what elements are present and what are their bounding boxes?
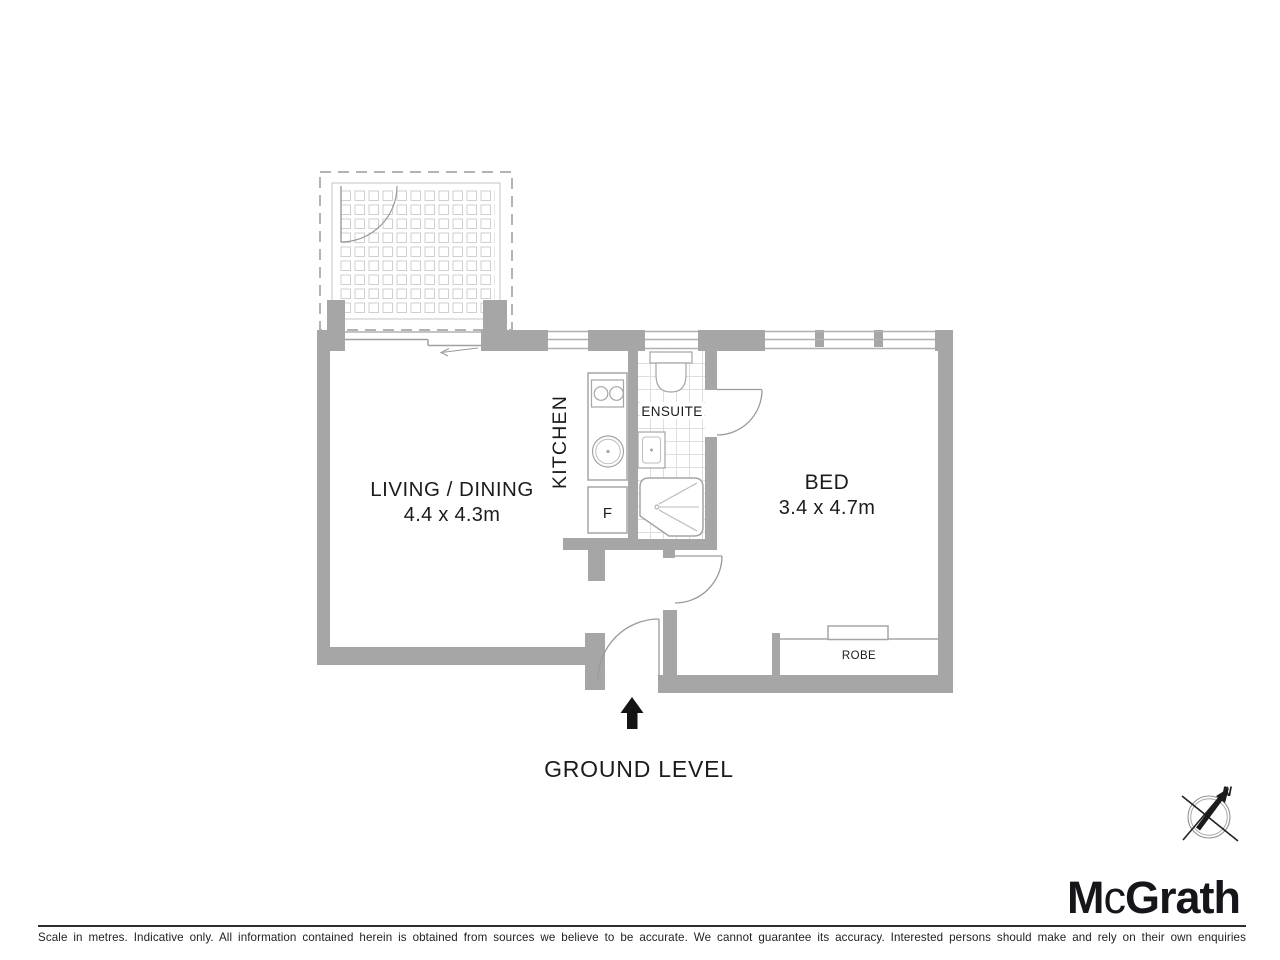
robe-unit	[780, 626, 940, 640]
wall-left	[317, 330, 330, 665]
wall-top-c	[588, 330, 645, 351]
fridge-label: F	[603, 505, 612, 522]
window-mullion-2	[874, 330, 883, 347]
entry-arrow-icon	[621, 697, 644, 729]
wall-entry-right-stub	[663, 610, 677, 675]
courtyard-pillar-left	[327, 300, 345, 332]
courtyard-paving	[337, 188, 495, 314]
window-ensuite	[645, 332, 698, 349]
floorplan-page: LIVING / DINING 4.4 x 4.3m KITCHEN ENSUI…	[0, 0, 1280, 960]
ensuite-fixtures	[638, 351, 705, 539]
footer-divider	[38, 925, 1246, 927]
window-mullion-1	[815, 330, 824, 347]
wall-bottom-left	[317, 647, 585, 665]
wall-right	[938, 330, 953, 693]
living-room-dims: 4.4 x 4.3m	[404, 504, 500, 526]
wall-ensuite-right-bottom	[705, 437, 717, 550]
toilet-cistern	[650, 352, 692, 363]
kitchen-label: KITCHEN	[549, 395, 571, 489]
ground-level-label: GROUND LEVEL	[544, 756, 734, 782]
toilet-icon	[656, 363, 686, 392]
wall-bottom-right	[658, 675, 953, 693]
floorplan-canvas: LIVING / DINING 4.4 x 4.3m KITCHEN ENSUI…	[0, 0, 1280, 960]
sliding-door	[345, 332, 481, 356]
bed-room-label: BED	[805, 471, 850, 494]
logo-letters-grath: Grath	[1125, 872, 1240, 923]
window-bed	[765, 332, 935, 349]
bedroom-door-arc	[675, 556, 722, 603]
wall-top-b	[481, 330, 548, 351]
bed-room-dims: 3.4 x 4.7m	[779, 497, 875, 519]
logo-letter-c: c	[1103, 872, 1125, 923]
wall-hall-top	[563, 538, 715, 550]
window-kitchen	[548, 332, 588, 349]
sink-drain-dot	[606, 450, 609, 453]
wall-kitchen-ensuite-divider	[628, 351, 638, 541]
ensuite-label: ENSUITE	[641, 404, 702, 419]
basin-drain-dot	[650, 449, 653, 452]
wall-top-d	[698, 330, 765, 351]
wall-hall-stub	[588, 548, 605, 581]
wall-hall-notch	[663, 550, 675, 558]
logo-letter-m: M	[1067, 872, 1104, 923]
robe-label: ROBE	[842, 650, 876, 662]
wall-ensuite-right-top	[705, 351, 717, 390]
compass-icon: N	[1182, 784, 1238, 841]
wall-entry-left-stub	[585, 633, 605, 690]
disclaimer-text: Scale in metres. Indicative only. All in…	[38, 931, 1246, 944]
ensuite-door-arc	[717, 390, 762, 435]
robe-sliding-panel	[828, 626, 888, 640]
compass-north-label: N	[1222, 784, 1232, 799]
wall-robe-partition	[772, 633, 780, 677]
courtyard	[320, 172, 512, 332]
entry-door-arc	[598, 619, 659, 680]
sliding-door-arrow-icon	[441, 348, 478, 356]
courtyard-pillar-right	[483, 300, 507, 332]
mcgrath-logo: McGrath	[1067, 872, 1240, 924]
living-room-label: LIVING / DINING	[370, 478, 534, 501]
